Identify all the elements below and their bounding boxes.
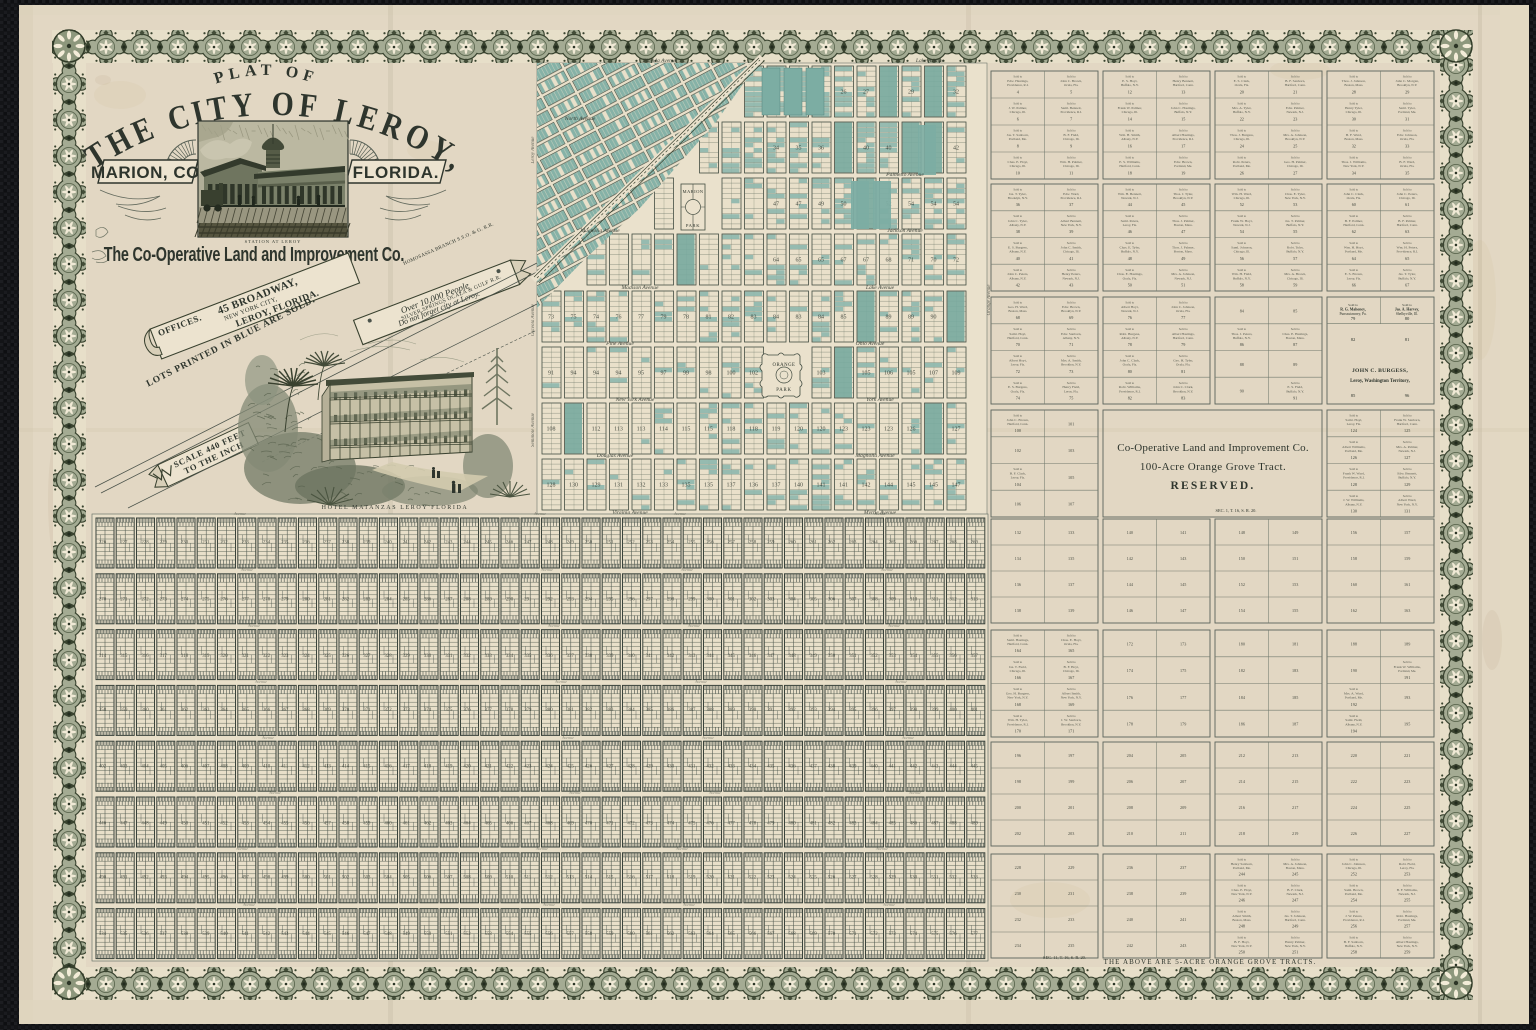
svg-text:Avenue: Avenue (887, 623, 900, 628)
svg-text:68: 68 (1016, 315, 1020, 320)
svg-text:262: 262 (828, 541, 836, 546)
svg-text:Sold to: Sold to (1125, 102, 1134, 106)
svg-text:267: 267 (931, 541, 939, 546)
svg-text:226: 226 (99, 541, 107, 546)
svg-text:137: 137 (1068, 582, 1074, 587)
svg-text:74: 74 (593, 315, 599, 321)
svg-text:136: 136 (1015, 582, 1021, 587)
svg-text:Sold to: Sold to (1125, 301, 1134, 305)
svg-text:Sold to: Sold to (1067, 188, 1076, 192)
svg-text:328: 328 (384, 654, 392, 659)
svg-text:358: 358 (99, 708, 107, 713)
svg-text:154: 154 (1239, 608, 1246, 613)
svg-text:Sold to: Sold to (1125, 327, 1134, 331)
svg-text:259: 259 (1404, 950, 1410, 955)
svg-text:509: 509 (485, 875, 493, 880)
svg-text:Sold to: Sold to (1067, 381, 1076, 385)
svg-text:335: 335 (524, 654, 532, 659)
svg-text:385: 385 (646, 708, 654, 713)
svg-text:426: 426 (585, 765, 593, 770)
svg-text:42: 42 (1016, 283, 1020, 288)
svg-text:274: 274 (181, 597, 189, 602)
svg-text:Sold to: Sold to (1349, 494, 1358, 498)
svg-text:290: 290 (506, 597, 514, 602)
svg-text:25: 25 (1293, 144, 1297, 149)
svg-text:425: 425 (567, 765, 575, 770)
svg-text:356: 356 (949, 654, 957, 659)
svg-text:349: 349 (810, 654, 818, 659)
svg-text:Magnolia Avenue: Magnolia Avenue (579, 228, 620, 234)
svg-text:575: 575 (931, 932, 939, 937)
svg-text:408: 408 (220, 765, 228, 770)
svg-text:187: 187 (1292, 722, 1298, 727)
svg-text:577: 577 (971, 932, 979, 937)
svg-text:474: 474 (667, 822, 675, 827)
svg-text:201: 201 (1068, 805, 1074, 810)
svg-text:85: 85 (1293, 308, 1297, 313)
svg-text:256: 256 (1351, 924, 1357, 929)
svg-text:572: 572 (870, 932, 878, 937)
svg-text:Sold to: Sold to (1349, 241, 1358, 245)
svg-text:284: 284 (384, 597, 392, 602)
svg-text:530: 530 (910, 875, 918, 880)
svg-text:Sold to: Sold to (1349, 414, 1358, 418)
svg-text:145: 145 (929, 483, 938, 489)
svg-text:315: 315 (120, 654, 128, 659)
svg-text:Avenue: Avenue (561, 735, 574, 740)
svg-text:138: 138 (1015, 608, 1021, 613)
svg-text:26: 26 (1240, 171, 1244, 176)
svg-text:37: 37 (1069, 202, 1073, 207)
svg-text:376: 376 (463, 708, 471, 713)
svg-text:542: 542 (263, 932, 271, 937)
svg-text:432: 432 (706, 765, 714, 770)
svg-text:112: 112 (592, 427, 601, 433)
svg-text:282: 282 (342, 597, 350, 602)
svg-text:422: 422 (506, 765, 514, 770)
svg-text:194: 194 (1351, 729, 1358, 734)
svg-text:399: 399 (931, 708, 939, 713)
svg-text:Sold to: Sold to (1125, 129, 1134, 133)
svg-text:307: 307 (849, 597, 857, 602)
svg-text:570: 570 (828, 932, 836, 937)
svg-text:Avenue: Avenue (235, 846, 248, 851)
svg-text:Avenue: Avenue (261, 735, 274, 740)
svg-text:Sold to: Sold to (1125, 381, 1134, 385)
svg-text:277: 277 (242, 597, 250, 602)
svg-text:464: 464 (463, 822, 471, 827)
svg-text:270: 270 (99, 597, 107, 602)
svg-text:135: 135 (682, 483, 691, 489)
svg-text:Sold to: Sold to (1067, 129, 1076, 133)
svg-text:435: 435 (767, 765, 775, 770)
svg-text:406: 406 (181, 765, 189, 770)
svg-text:265: 265 (889, 541, 897, 546)
svg-text:York Avenue: York Avenue (866, 397, 894, 403)
svg-text:532: 532 (949, 875, 957, 880)
svg-text:324: 324 (302, 654, 310, 659)
svg-text:545: 545 (324, 932, 332, 937)
svg-text:225: 225 (1404, 805, 1410, 810)
svg-text:Sold to: Sold to (1067, 687, 1076, 691)
svg-text:431: 431 (688, 765, 696, 770)
svg-text:90: 90 (931, 315, 937, 321)
svg-text:553: 553 (485, 932, 493, 937)
svg-text:36: 36 (1016, 202, 1020, 207)
svg-text:258: 258 (749, 541, 757, 546)
svg-text:70: 70 (931, 258, 937, 264)
svg-text:32: 32 (953, 90, 959, 96)
svg-text:519: 519 (688, 875, 696, 880)
svg-text:Avenue: Avenue (675, 846, 688, 851)
svg-text:249: 249 (567, 541, 575, 546)
svg-text:Sold to: Sold to (1013, 714, 1022, 718)
svg-text:Sold to: Sold to (1067, 241, 1076, 245)
svg-text:199: 199 (1068, 779, 1074, 784)
svg-text:27: 27 (863, 90, 869, 96)
svg-text:470: 470 (585, 822, 593, 827)
svg-text:89: 89 (908, 315, 914, 321)
svg-text:495: 495 (202, 875, 210, 880)
svg-text:81: 81 (706, 315, 712, 321)
svg-text:73: 73 (1069, 369, 1073, 374)
svg-text:35: 35 (1405, 171, 1409, 176)
svg-text:181: 181 (1292, 641, 1298, 646)
svg-text:84: 84 (773, 315, 779, 321)
svg-text:304: 304 (788, 597, 796, 602)
svg-text:120: 120 (817, 427, 826, 433)
svg-text:36: 36 (818, 146, 824, 152)
svg-text:81: 81 (1181, 369, 1185, 374)
svg-text:94: 94 (616, 371, 622, 377)
svg-text:Sold to: Sold to (1013, 327, 1022, 331)
svg-text:264: 264 (870, 541, 878, 546)
svg-text:126: 126 (1351, 455, 1357, 460)
svg-text:563: 563 (688, 932, 696, 937)
svg-text:Sold to: Sold to (1179, 268, 1188, 272)
svg-text:Avenue: Avenue (873, 511, 886, 516)
svg-text:254: 254 (1351, 898, 1358, 903)
svg-text:MARION: MARION (682, 189, 703, 194)
svg-text:471: 471 (606, 822, 614, 827)
svg-text:560: 560 (627, 932, 635, 937)
svg-text:388: 388 (706, 708, 714, 713)
svg-text:79: 79 (1181, 342, 1185, 347)
svg-text:316: 316 (141, 654, 149, 659)
svg-text:413: 413 (324, 765, 332, 770)
svg-text:137: 137 (772, 483, 781, 489)
svg-text:177: 177 (1180, 695, 1186, 700)
svg-text:176: 176 (1127, 695, 1133, 700)
svg-text:512: 512 (545, 875, 553, 880)
svg-text:337: 337 (567, 654, 575, 659)
svg-text:134: 134 (1015, 556, 1022, 561)
svg-text:173: 173 (1180, 641, 1186, 646)
svg-text:496: 496 (220, 875, 228, 880)
svg-text:New York Avenue: New York Avenue (615, 397, 655, 403)
svg-text:132: 132 (637, 483, 646, 489)
svg-text:171: 171 (1068, 729, 1074, 734)
svg-text:236: 236 (1127, 865, 1133, 870)
svg-text:345: 345 (728, 654, 736, 659)
svg-text:405: 405 (160, 765, 168, 770)
svg-text:253: 253 (646, 541, 654, 546)
svg-text:75: 75 (1069, 396, 1073, 401)
svg-text:31: 31 (1405, 117, 1409, 122)
svg-text:150: 150 (1239, 556, 1245, 561)
svg-text:263: 263 (849, 541, 857, 546)
svg-text:142: 142 (862, 483, 871, 489)
svg-text:382: 382 (585, 708, 593, 713)
svg-text:Avenue: Avenue (554, 679, 567, 684)
svg-text:7: 7 (1070, 117, 1072, 122)
svg-text:231: 231 (202, 541, 210, 546)
svg-text:151: 151 (1292, 556, 1298, 561)
svg-text:513: 513 (567, 875, 575, 880)
svg-text:Sold to: Sold to (1349, 102, 1358, 106)
svg-text:Sold to: Sold to (1237, 188, 1246, 192)
svg-text:Sold to: Sold to (1349, 910, 1358, 914)
svg-text:220: 220 (1351, 753, 1357, 758)
svg-text:174: 174 (1127, 668, 1134, 673)
svg-text:488: 488 (949, 822, 957, 827)
svg-text:446: 446 (99, 822, 107, 827)
svg-text:118: 118 (749, 427, 758, 433)
svg-text:190: 190 (1351, 668, 1357, 673)
svg-text:248: 248 (545, 541, 553, 546)
svg-text:114: 114 (659, 427, 668, 433)
svg-text:559: 559 (606, 932, 614, 937)
svg-text:Sold to: Sold to (1237, 268, 1246, 272)
svg-text:Avenue: Avenue (880, 567, 893, 572)
svg-text:Sold to: Sold to (1013, 156, 1022, 160)
svg-text:Sold to: Sold to (1013, 301, 1022, 305)
svg-text:169: 169 (1068, 702, 1074, 707)
svg-text:276: 276 (220, 597, 228, 602)
svg-text:234: 234 (263, 541, 271, 546)
svg-text:302: 302 (749, 597, 757, 602)
svg-text:210: 210 (1127, 831, 1133, 836)
svg-text:400: 400 (949, 708, 957, 713)
svg-text:472: 472 (627, 822, 635, 827)
svg-text:178: 178 (1127, 722, 1133, 727)
svg-text:Avenue: Avenue (268, 790, 281, 795)
svg-text:227: 227 (120, 541, 128, 546)
svg-text:527: 527 (849, 875, 857, 880)
svg-text:140: 140 (794, 483, 803, 489)
svg-text:229: 229 (1068, 865, 1074, 870)
svg-text:398: 398 (910, 708, 918, 713)
svg-text:91: 91 (1293, 396, 1297, 401)
svg-text:Avenue: Avenue (254, 679, 267, 684)
svg-text:Sold to: Sold to (1237, 241, 1246, 245)
svg-text:Sold to: Sold to (1291, 241, 1300, 245)
svg-text:Avenue: Avenue (535, 846, 548, 851)
svg-text:340: 340 (627, 654, 635, 659)
svg-text:73: 73 (548, 315, 554, 321)
svg-text:147: 147 (952, 483, 961, 489)
svg-text:Sold to: Sold to (1403, 467, 1412, 471)
svg-text:Sold to: Sold to (1067, 214, 1076, 218)
svg-text:203: 203 (1068, 831, 1074, 836)
svg-text:475: 475 (688, 822, 696, 827)
svg-text:43: 43 (1069, 283, 1073, 288)
svg-text:140: 140 (1127, 530, 1133, 535)
svg-text:217: 217 (1292, 805, 1298, 810)
svg-text:247: 247 (1292, 898, 1298, 903)
svg-text:232: 232 (1015, 917, 1021, 922)
svg-text:106: 106 (884, 371, 893, 377)
svg-text:459: 459 (363, 822, 371, 827)
svg-text:535: 535 (120, 932, 128, 937)
svg-text:456: 456 (302, 822, 310, 827)
svg-text:Avenue: Avenue (533, 511, 546, 516)
svg-text:469: 469 (567, 822, 575, 827)
svg-text:164: 164 (1015, 648, 1022, 653)
svg-text:312: 312 (949, 597, 957, 602)
svg-text:219: 219 (1292, 831, 1298, 836)
svg-text:451: 451 (202, 822, 210, 827)
svg-text:26: 26 (841, 90, 847, 96)
svg-text:329: 329 (403, 654, 411, 659)
svg-text:Sold to: Sold to (1067, 102, 1076, 106)
svg-text:Sold to: Sold to (1403, 494, 1412, 498)
svg-text:394: 394 (828, 708, 836, 713)
svg-text:275: 275 (202, 597, 210, 602)
svg-text:Sold to: Sold to (1291, 129, 1300, 133)
svg-text:128: 128 (1351, 482, 1357, 487)
svg-text:Sold to: Sold to (1403, 268, 1412, 272)
svg-text:29: 29 (908, 90, 914, 96)
svg-text:103: 103 (817, 371, 826, 377)
svg-text:Sold to: Sold to (1291, 936, 1300, 940)
svg-text:224: 224 (1351, 805, 1358, 810)
svg-text:430: 430 (667, 765, 675, 770)
svg-text:27: 27 (1293, 171, 1297, 176)
svg-text:Sold to: Sold to (1013, 381, 1022, 385)
svg-text:JOHN C. BURGESS,: JOHN C. BURGESS, (1352, 368, 1408, 374)
svg-text:Sold to: Sold to (1013, 687, 1022, 691)
svg-text:141: 141 (817, 483, 826, 489)
svg-text:308: 308 (870, 597, 878, 602)
svg-text:Sold to: Sold to (1349, 214, 1358, 218)
svg-text:477: 477 (728, 822, 736, 827)
svg-text:473: 473 (646, 822, 654, 827)
svg-text:71: 71 (1069, 342, 1073, 347)
svg-text:505: 505 (403, 875, 411, 880)
svg-text:Ohio Avenue: Ohio Avenue (856, 341, 885, 347)
svg-text:33: 33 (1405, 144, 1409, 149)
svg-text:564: 564 (706, 932, 714, 937)
svg-text:55: 55 (1293, 229, 1297, 234)
svg-text:61: 61 (1405, 202, 1409, 207)
svg-text:502: 502 (342, 875, 350, 880)
svg-text:521: 521 (728, 875, 736, 880)
svg-text:540: 540 (220, 932, 228, 937)
svg-text:Sold to: Sold to (1291, 188, 1300, 192)
svg-text:PARK: PARK (776, 388, 792, 393)
svg-text:251: 251 (606, 541, 614, 546)
svg-text:241: 241 (403, 541, 411, 546)
svg-text:480: 480 (788, 822, 796, 827)
svg-text:Sold to: Sold to (1237, 936, 1246, 940)
svg-text:THE ABOVE ARE 5-ACRE ORANGE GR: THE ABOVE ARE 5-ACRE ORANGE GROVE TRACTS… (1104, 958, 1317, 966)
svg-text:Lake Avenue: Lake Avenue (915, 58, 945, 64)
svg-text:18: 18 (1128, 171, 1132, 176)
svg-text:392: 392 (788, 708, 796, 713)
svg-text:Avenue: Avenue (908, 790, 921, 795)
svg-text:Sold to: Sold to (1291, 75, 1300, 79)
svg-text:120: 120 (794, 427, 803, 433)
svg-text:53: 53 (1293, 202, 1297, 207)
svg-text:Sold to: Sold to (1403, 188, 1412, 192)
svg-text:80: 80 (1405, 316, 1410, 321)
svg-text:322: 322 (263, 654, 271, 659)
svg-text:142: 142 (1127, 556, 1133, 561)
svg-text:59: 59 (1293, 283, 1297, 288)
svg-text:334: 334 (506, 654, 514, 659)
svg-text:240: 240 (1127, 917, 1133, 922)
svg-text:486: 486 (910, 822, 918, 827)
svg-text:283: 283 (363, 597, 371, 602)
svg-text:227: 227 (1404, 831, 1410, 836)
svg-text:407: 407 (202, 765, 210, 770)
svg-text:523: 523 (767, 875, 775, 880)
svg-text:442: 442 (910, 765, 918, 770)
svg-text:Sold to: Sold to (1179, 214, 1188, 218)
svg-text:562: 562 (667, 932, 675, 937)
svg-text:The Co-Operative Land and Impr: The Co-Operative Land and Improvement Co… (104, 243, 404, 266)
svg-text:298: 298 (667, 597, 675, 602)
svg-text:525: 525 (810, 875, 818, 880)
svg-text:Sold to: Sold to (1237, 75, 1246, 79)
svg-text:58: 58 (1240, 283, 1244, 288)
svg-text:303: 303 (767, 597, 775, 602)
svg-text:209: 209 (1180, 805, 1186, 810)
svg-text:128: 128 (547, 483, 556, 489)
svg-text:159: 159 (1404, 556, 1410, 561)
svg-text:65: 65 (796, 258, 802, 264)
svg-text:522: 522 (749, 875, 757, 880)
svg-text:338: 338 (585, 654, 593, 659)
svg-text:434: 434 (749, 765, 757, 770)
svg-text:141: 141 (1180, 530, 1186, 535)
svg-text:245: 245 (1292, 872, 1298, 877)
svg-text:Avenue: Avenue (540, 567, 553, 572)
svg-text:411: 411 (281, 765, 289, 770)
svg-text:149: 149 (1292, 530, 1298, 535)
svg-text:331: 331 (445, 654, 453, 659)
svg-text:531: 531 (931, 875, 939, 880)
svg-text:Palmetto Avenue: Palmetto Avenue (885, 172, 924, 178)
svg-text:188: 188 (1351, 641, 1357, 646)
svg-text:555: 555 (524, 932, 532, 937)
svg-text:67: 67 (841, 258, 847, 264)
svg-text:436: 436 (788, 765, 796, 770)
svg-text:136: 136 (749, 483, 758, 489)
svg-text:94: 94 (593, 371, 599, 377)
svg-text:115: 115 (704, 427, 713, 433)
svg-text:468: 468 (545, 822, 553, 827)
svg-text:99: 99 (683, 371, 689, 377)
svg-text:47: 47 (1181, 229, 1185, 234)
svg-text:498: 498 (263, 875, 271, 880)
svg-text:541: 541 (242, 932, 250, 937)
svg-text:RESERVED.: RESERVED. (1171, 480, 1256, 492)
svg-text:447: 447 (120, 822, 128, 827)
svg-text:Sold to: Sold to (1067, 75, 1076, 79)
svg-text:213: 213 (1292, 753, 1298, 758)
